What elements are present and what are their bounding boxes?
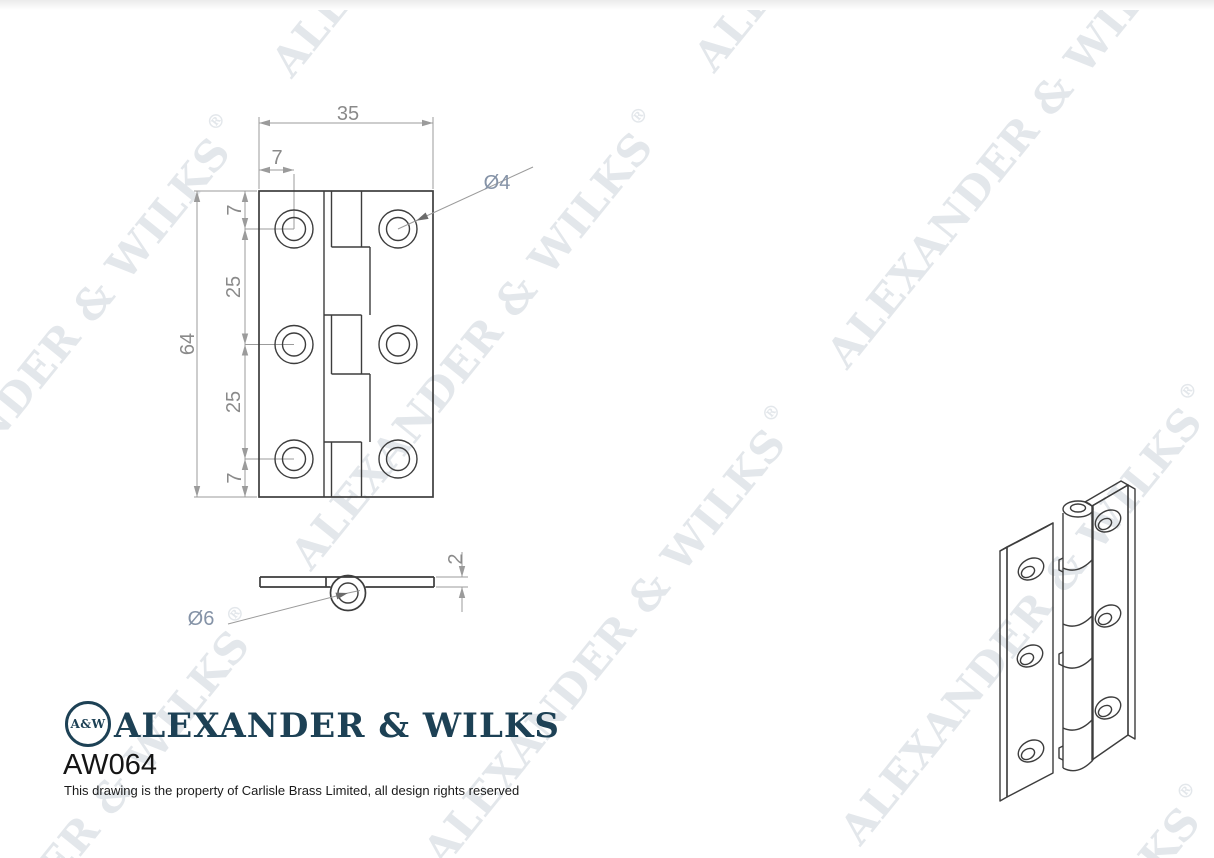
iso-barrel: [1059, 501, 1093, 771]
product-code: AW064: [63, 749, 157, 782]
dim-hole-inset-7: 7: [259, 147, 294, 173]
dim-value: 7: [224, 204, 246, 215]
leaf-profile: [260, 577, 434, 587]
screw-hole: [1091, 693, 1124, 724]
dim-thickness-2: 2: [436, 552, 468, 612]
hole-centre-leaders: [245, 174, 294, 459]
screw-hole: [1091, 601, 1124, 632]
screw-hole: [379, 326, 417, 364]
screw-holes-front: [275, 210, 417, 478]
dim-value: 7: [224, 472, 246, 483]
screw-hole: [1014, 554, 1047, 585]
dim-value: 35: [337, 103, 359, 125]
dim-value: Ø4: [484, 172, 511, 194]
front-view: [245, 174, 433, 497]
dim-value: 25: [223, 276, 245, 298]
screw-hole: [1091, 506, 1124, 537]
dim-hole-chain: 7 25 25 7: [223, 191, 248, 497]
brand-logo-badge: A&W: [65, 701, 111, 747]
iso-screw-holes: [1013, 506, 1124, 767]
side-view: Ø6 2: [188, 552, 468, 630]
copyright-notice: This drawing is the property of Carlisle…: [64, 783, 519, 798]
dim-value: 64: [177, 333, 199, 355]
brand-wordmark: ALEXANDER & WILKS: [114, 706, 560, 746]
dim-value: Ø6: [188, 608, 215, 630]
drawing-sheet: ALEXANDER & WILKS®ALEXANDER & WILKS®ALEX…: [0, 0, 1214, 858]
dim-width-35: 35: [259, 103, 433, 189]
dim-knuckle-diameter: Ø6: [188, 591, 360, 631]
dim-value: 25: [223, 391, 245, 413]
dim-value: 7: [271, 147, 282, 169]
dim-value: 2: [445, 553, 467, 564]
screw-hole: [379, 440, 417, 478]
brand-monogram: A&W: [70, 717, 105, 731]
knuckle-joint-lines: [324, 191, 370, 497]
screw-hole: [1014, 736, 1047, 767]
dim-hole-diameter: Ø4: [398, 167, 533, 229]
isometric-view: [1000, 481, 1135, 801]
screw-hole: [1013, 641, 1046, 672]
